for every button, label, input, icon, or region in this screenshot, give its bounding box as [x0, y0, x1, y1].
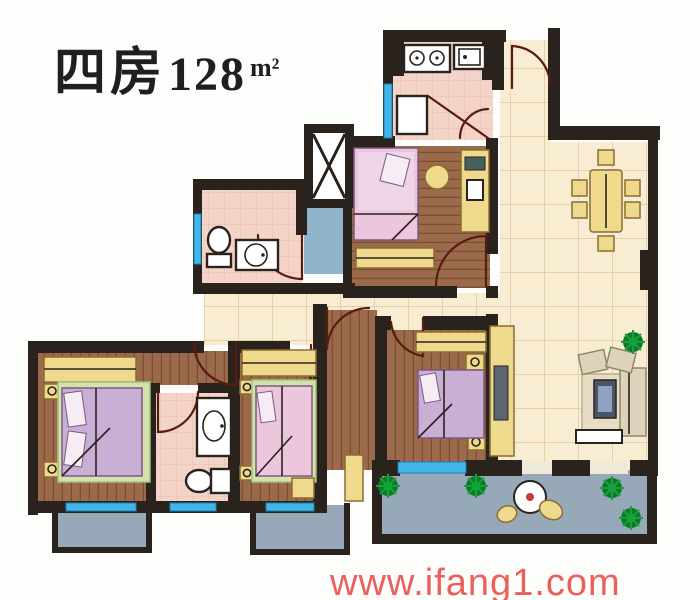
- stool-icon: [425, 165, 449, 189]
- chair-icon: [625, 180, 640, 196]
- wall: [375, 316, 387, 470]
- wall: [552, 460, 590, 476]
- watermark-text: www.ifang1.com: [330, 562, 621, 600]
- wall: [28, 341, 38, 515]
- wall-balcony: [372, 534, 657, 544]
- bedroom-right: [416, 332, 486, 450]
- wall-balcony: [146, 503, 152, 553]
- toilet-tank: [211, 469, 231, 493]
- tv-bench: [576, 430, 622, 443]
- floor-dining-area: [500, 142, 648, 304]
- bedroom-left: [44, 357, 150, 482]
- wall: [193, 283, 355, 294]
- title-area-number: 128: [168, 47, 246, 102]
- floor-plan-image: 四房 128 m² www.ifang1.com: [0, 0, 700, 600]
- wall: [28, 341, 204, 353]
- coffee-table-glass: [598, 386, 612, 412]
- window: [266, 503, 314, 511]
- floor-bedroom-nook: [327, 310, 377, 470]
- wall-balcony: [52, 547, 152, 553]
- wall-balcony: [52, 503, 58, 553]
- toilet-icon: [208, 227, 230, 253]
- chair-icon: [598, 236, 614, 251]
- window: [170, 503, 216, 511]
- faucet-icon: [463, 55, 467, 59]
- patio-table-centerpiece: [526, 493, 534, 501]
- chair-icon: [572, 202, 587, 218]
- toilet-icon: [186, 470, 212, 492]
- armchair-icon: [578, 350, 608, 375]
- wall: [313, 304, 327, 348]
- burner-dot: [415, 56, 418, 59]
- desk-chair: [467, 180, 483, 200]
- plan-title: 四房 128 m²: [54, 30, 279, 105]
- balcony-door-opening: [522, 462, 552, 474]
- wall: [648, 126, 658, 470]
- wall: [423, 316, 489, 330]
- title-bedrooms: 四房: [54, 30, 166, 105]
- tv-icon: [494, 366, 508, 420]
- faucet-icon: [220, 424, 224, 428]
- window: [194, 214, 201, 264]
- elevator: [304, 124, 354, 208]
- wall-balcony: [250, 549, 350, 555]
- washbasin-icon: [197, 398, 231, 456]
- cabinet-icon: [345, 455, 363, 501]
- sofa-icon: [620, 368, 646, 436]
- kitchen-counter: [397, 96, 427, 134]
- toilet-tank: [207, 254, 231, 267]
- chair-icon: [598, 150, 614, 165]
- wall-column: [640, 250, 658, 290]
- wall: [465, 460, 522, 476]
- floor-entry: [500, 40, 550, 144]
- window: [66, 503, 136, 511]
- floor-bedroom-left-entry: [150, 351, 238, 385]
- wall: [486, 286, 498, 298]
- burner-dot: [435, 56, 438, 59]
- wall: [343, 286, 457, 298]
- wall: [548, 126, 660, 140]
- title-area-unit: m²: [250, 53, 279, 83]
- computer-icon: [465, 157, 485, 170]
- wall-balcony: [344, 503, 350, 555]
- faucet-icon: [261, 253, 265, 257]
- window: [384, 84, 392, 138]
- chair-icon: [625, 202, 640, 218]
- cabinet-icon: [292, 478, 314, 498]
- wall-balcony: [250, 503, 256, 555]
- wall: [492, 30, 504, 90]
- chair-icon: [572, 180, 587, 196]
- wall: [375, 316, 391, 330]
- window: [398, 462, 466, 473]
- balcony-door-opening: [590, 462, 628, 474]
- stove-icon: [404, 45, 450, 72]
- nightstand-icon: [466, 354, 484, 370]
- wall-balcony: [647, 468, 657, 544]
